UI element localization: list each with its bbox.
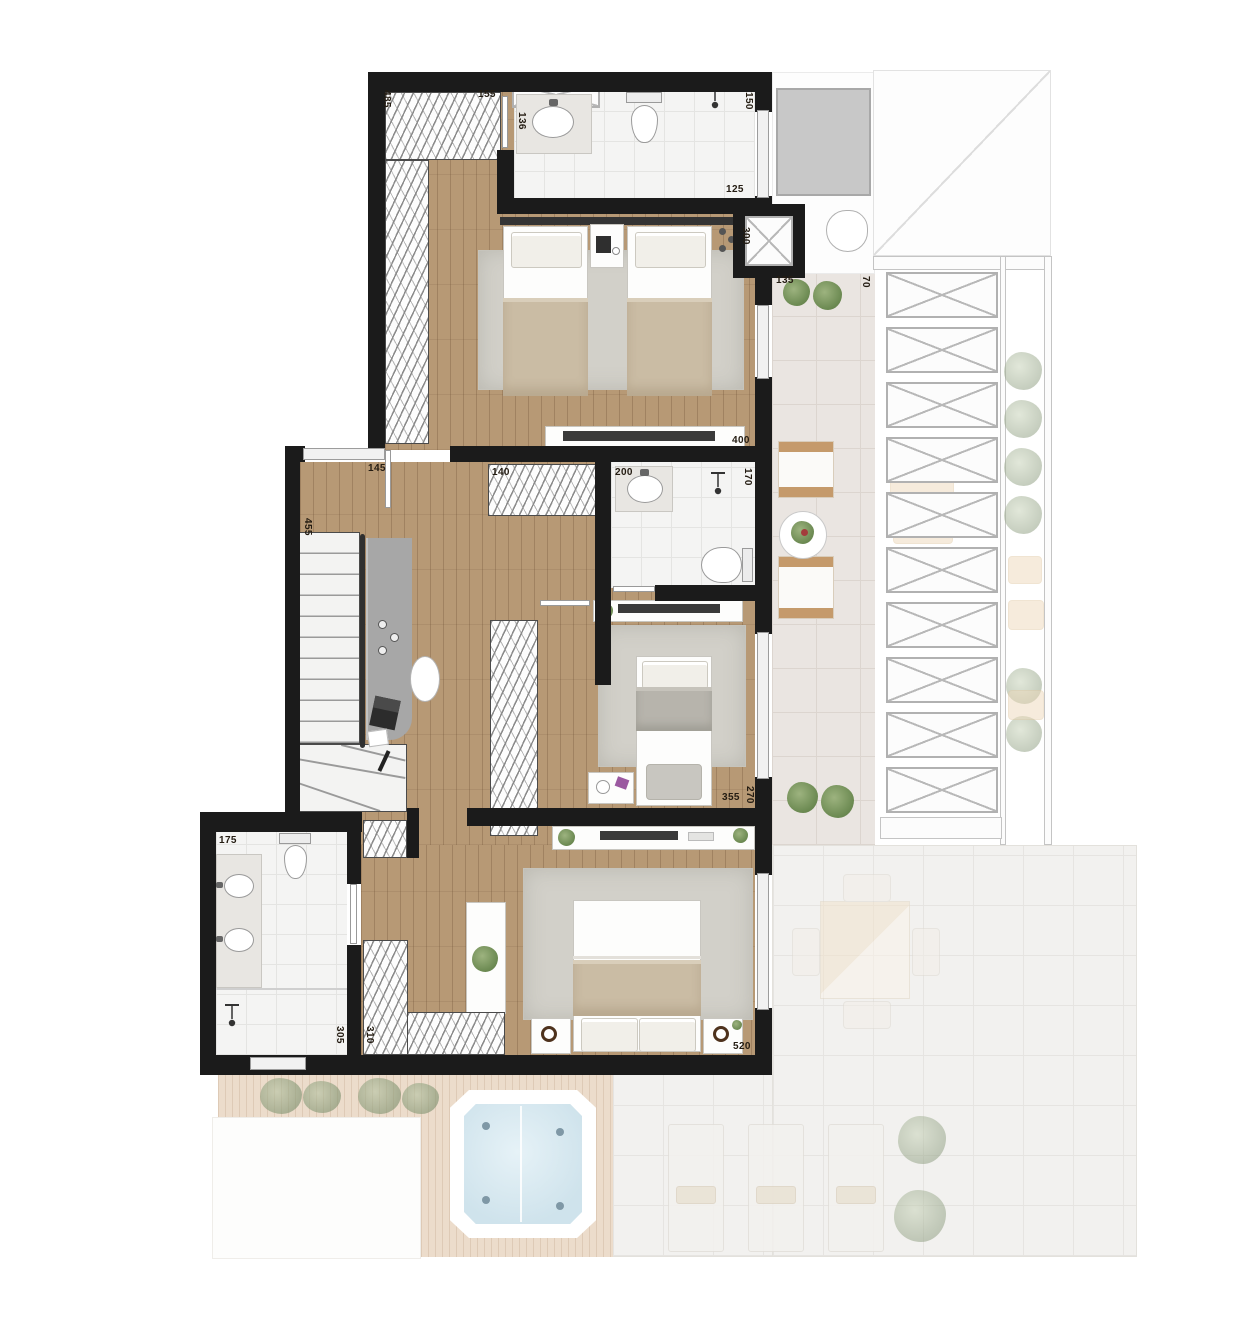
wall-left-upper: [368, 72, 385, 458]
elevator-hall-mat: [776, 88, 871, 196]
twin-bed-2-pillow: [635, 232, 706, 268]
master-dresser-plant-right: [733, 828, 748, 843]
outdoor-chair-bottom: [843, 1001, 891, 1029]
wall-bath3-right-b: [347, 945, 361, 1055]
terrace-bush-2: [894, 1190, 946, 1242]
wall-bath1-bottom: [497, 198, 755, 214]
bath1-toilet-tank: [626, 92, 662, 103]
pergola-slat-1: [886, 272, 998, 318]
pergola-slat-2: [886, 327, 998, 373]
wall-terrace-mid-a: [755, 462, 772, 604]
wall-stair-left: [285, 462, 300, 812]
wall-hall-top-stub: [285, 446, 305, 462]
dim-terrace1-depth: 170: [742, 468, 752, 486]
desk-stool: [410, 656, 440, 702]
jacuzzi-jet-4: [556, 1202, 564, 1210]
dim-bath1-width: 150: [743, 92, 753, 110]
terrace-plant-top-2: [813, 281, 842, 310]
bath3-tap-1: [216, 882, 223, 888]
window-master: [757, 873, 769, 1010]
pergola-slat-10: [886, 767, 998, 813]
dim-stair-run: 455: [302, 518, 312, 536]
master-chest-plant: [472, 946, 498, 972]
pergola-rail-inner: [1000, 256, 1006, 845]
master-pillow-left: [581, 1018, 638, 1052]
bedroom1-headboard: [500, 217, 752, 225]
terrace-plant-bottom-2: [821, 785, 854, 818]
wall-terrace-mid-b: [755, 604, 772, 634]
pergola-slat-8: [886, 657, 998, 703]
column-circle: [826, 210, 868, 252]
jacuzzi-seam: [520, 1106, 522, 1222]
master-tv: [600, 831, 678, 840]
pergola-plant-6: [1006, 716, 1042, 752]
stair-winders: [293, 744, 407, 812]
bedroom1-nightstand-knob: [612, 247, 620, 255]
bath1-tap: [549, 99, 558, 106]
terrace-lounge-chair-2: [778, 556, 834, 619]
lounger-towel-1: [676, 1186, 716, 1204]
dim-terrace1-width: 135: [776, 276, 794, 286]
pergola-slat-7: [886, 602, 998, 648]
desk-paper: [367, 729, 389, 748]
twin-bed-1-pillow: [511, 232, 582, 268]
master-nightstand-plant: [732, 1020, 742, 1030]
pergola-plant-1: [1004, 352, 1042, 390]
master-nightstand-right-lamp: [713, 1026, 729, 1042]
dim-bedroom1-length: 300: [740, 227, 750, 245]
faded-seat-right-2: [1008, 600, 1044, 630]
window-bath1: [757, 110, 769, 198]
pergola-plant-2: [1004, 400, 1042, 438]
pergola-plant-3: [1004, 448, 1042, 486]
bath3-sink-1: [224, 874, 254, 898]
master-pillow-right: [639, 1018, 696, 1052]
dim-closet-length: 485: [381, 90, 391, 108]
closet-wardrobe-top: [385, 92, 501, 160]
master-closet-a: [363, 820, 407, 858]
outdoor-chair-top: [843, 874, 891, 902]
wall-hall-top-main: [450, 446, 772, 462]
wall-top: [368, 72, 772, 92]
wall-bath1-left: [497, 150, 514, 214]
door-bedroom2: [540, 600, 590, 606]
dim-bedroom2-width: 355: [722, 793, 740, 803]
jacuzzi-jet-2: [556, 1128, 564, 1136]
door-bath1: [502, 96, 508, 148]
terrace-lounge-chair-1: [778, 441, 834, 498]
pergola-slat-6: [886, 547, 998, 593]
bath2-tap: [640, 469, 649, 476]
window-bedroom1: [757, 305, 769, 379]
jacuzzi-jet-1: [482, 1122, 490, 1130]
lounger-towel-2: [756, 1186, 796, 1204]
bath3-shower-glass: [216, 988, 347, 990]
bath2-toilet-bowl: [701, 547, 742, 583]
jacuzzi-jet-3: [482, 1196, 490, 1204]
dim-closet3-depth: 305: [334, 1026, 344, 1044]
bath1-sink: [532, 106, 574, 138]
master-bed-blanket: [573, 960, 701, 1016]
pergola-slat-4: [886, 437, 998, 483]
bedroom1-nightstand-lamp: [596, 236, 611, 253]
outdoor-chair-right: [912, 928, 940, 976]
elevator-car: [745, 216, 793, 266]
stair-handrail: [360, 534, 365, 748]
bath2-toilet-tank: [742, 548, 753, 582]
master-dresser-plant-left: [558, 829, 575, 846]
bedroom1-side-decor-1: [719, 228, 726, 235]
master-nightstand-left-lamp: [541, 1026, 557, 1042]
bedroom2-nightstand: [588, 772, 634, 804]
window-hall: [303, 448, 385, 460]
bedroom2-nightstand-disc: [596, 780, 610, 794]
pergola-bottom-frame: [880, 817, 1002, 839]
pergola-rail-outer: [1044, 256, 1052, 845]
desk-cup-2: [390, 633, 399, 642]
dim-closet3-width: 310: [364, 1026, 374, 1044]
bath3-tap-2: [216, 936, 223, 942]
dim-bath1-vanity: 136: [516, 112, 526, 130]
twin-bed-1-blanket: [503, 298, 588, 396]
deck-shrub-1: [260, 1078, 302, 1114]
terrace-plant-bottom-1: [787, 782, 818, 813]
pergola-slat-3: [886, 382, 998, 428]
roof-plane: [873, 70, 1051, 256]
lounger-towel-3: [836, 1186, 876, 1204]
closet-wardrobe-left: [385, 160, 429, 444]
deck-shrub-2: [303, 1081, 341, 1113]
bedroom2-tv: [618, 604, 720, 613]
master-bed-sheet-fold: [573, 956, 701, 959]
outdoor-dining-table: [820, 901, 910, 999]
wall-bedroom1-right-a: [755, 278, 772, 305]
bedroom1-tv: [563, 431, 715, 441]
dim-hall-window: 145: [368, 464, 386, 474]
pergola-slat-5: [886, 492, 998, 538]
desk-cup-1: [378, 620, 387, 629]
shower-icon-2: [706, 470, 730, 498]
pergola-top-frame: [873, 256, 1051, 270]
desk-cup-3: [378, 646, 387, 655]
dim-closet-width: 155: [478, 90, 496, 100]
door-bath2: [613, 586, 655, 592]
bedroom2-bed-footpad: [646, 764, 702, 800]
terrace-table-decor: [801, 529, 808, 536]
dim-bath2-width: 200: [615, 468, 633, 478]
deck-shrub-4: [402, 1083, 439, 1114]
patio-white-area: [212, 1117, 421, 1259]
staircase: [293, 532, 360, 744]
floor-plan: 485 155 136 150 125 300 135 70 400 170 1…: [0, 0, 1256, 1320]
bedroom1-side-decor-3: [719, 245, 726, 252]
jacuzzi-water: [464, 1104, 582, 1224]
bath3-toilet-tank: [279, 833, 311, 844]
wall-left-lower: [200, 812, 216, 1075]
terrace-bush-1: [898, 1116, 946, 1164]
pergola-plant-4: [1004, 496, 1042, 534]
wall-master-right-b: [755, 1008, 772, 1075]
dim-bedroom2-depth: 270: [744, 786, 754, 804]
bath3-sink-2: [224, 928, 254, 952]
wall-bedroom2-bottom: [467, 808, 772, 826]
bedroom2-bed-pillow: [642, 661, 708, 689]
outdoor-chair-left: [792, 928, 820, 976]
door-bedroom1: [385, 450, 391, 508]
wall-hatch-stub: [407, 808, 419, 858]
wall-bath3-top: [200, 812, 362, 832]
dim-bath1-length: 125: [726, 185, 744, 195]
dim-closet2-width: 140: [492, 468, 510, 478]
twin-bed-2-blanket: [627, 298, 712, 396]
wall-master-right-a: [755, 847, 772, 875]
wall-bath1-right-a: [755, 72, 772, 112]
dim-terrace1-gap: 70: [860, 276, 870, 288]
dim-terrace1-length: 400: [732, 436, 750, 446]
window-bath3: [250, 1057, 306, 1070]
wall-bath3-right-a: [347, 812, 361, 884]
bedroom2-wardrobe: [490, 620, 538, 836]
bath2-sink: [627, 475, 663, 503]
shower-icon-3: [220, 1002, 244, 1030]
faded-seat-right-3: [1008, 690, 1044, 720]
master-closet-c: [407, 1012, 505, 1055]
door-bath3: [350, 884, 357, 944]
bedroom2-bed-blanket: [636, 687, 712, 731]
deck-shrub-3: [358, 1078, 401, 1114]
dim-master-width: 520: [733, 1042, 751, 1052]
pergola-slat-9: [886, 712, 998, 758]
faded-seat-right-1: [1008, 556, 1042, 584]
wall-bath2-left: [595, 462, 611, 685]
sliding-door-bedroom2: [757, 632, 769, 779]
master-dresser-tray: [688, 832, 714, 841]
dim-bath3-width: 175: [219, 836, 237, 846]
